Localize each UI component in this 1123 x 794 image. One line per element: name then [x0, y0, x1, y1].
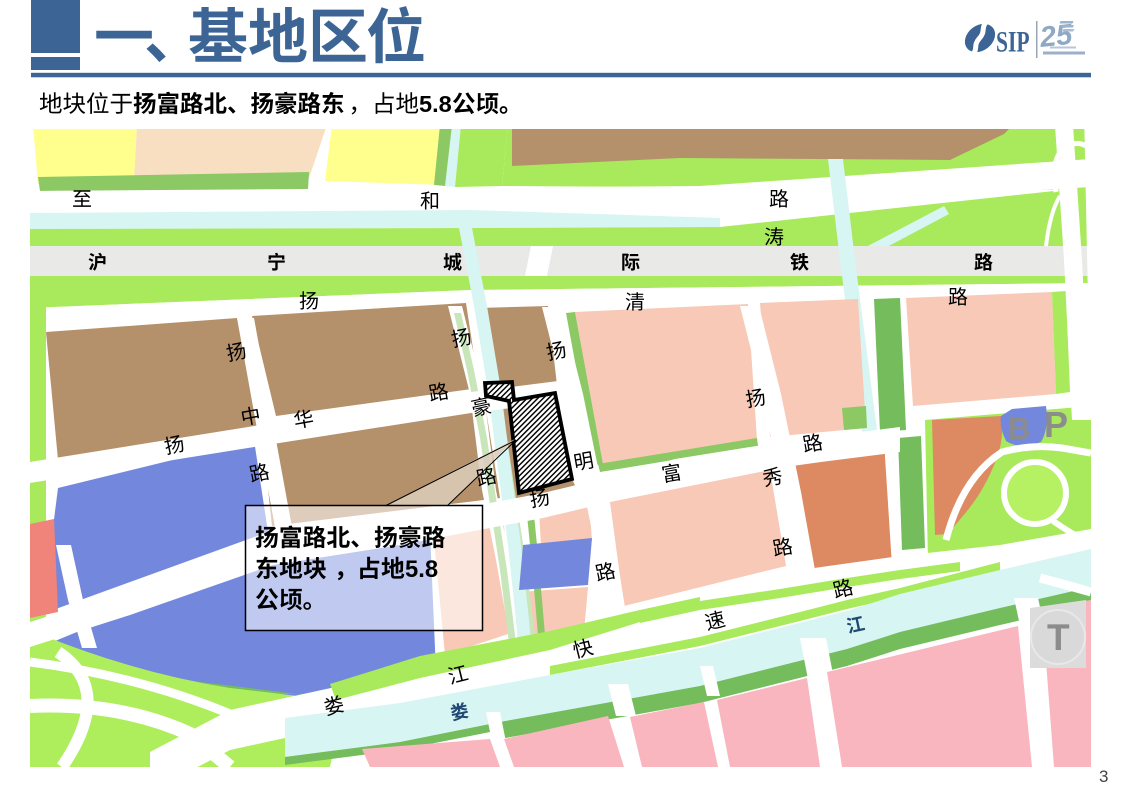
svg-text:5.8: 5.8: [405, 556, 438, 583]
svg-text:25: 25: [1037, 19, 1074, 54]
svg-text:B: B: [1008, 411, 1030, 446]
svg-text:5.8: 5.8: [419, 91, 452, 117]
svg-text:P: P: [1044, 404, 1068, 445]
svg-text:T: T: [1047, 617, 1070, 658]
svg-text:3: 3: [1099, 767, 1108, 786]
svg-text:SIP: SIP: [996, 25, 1030, 58]
